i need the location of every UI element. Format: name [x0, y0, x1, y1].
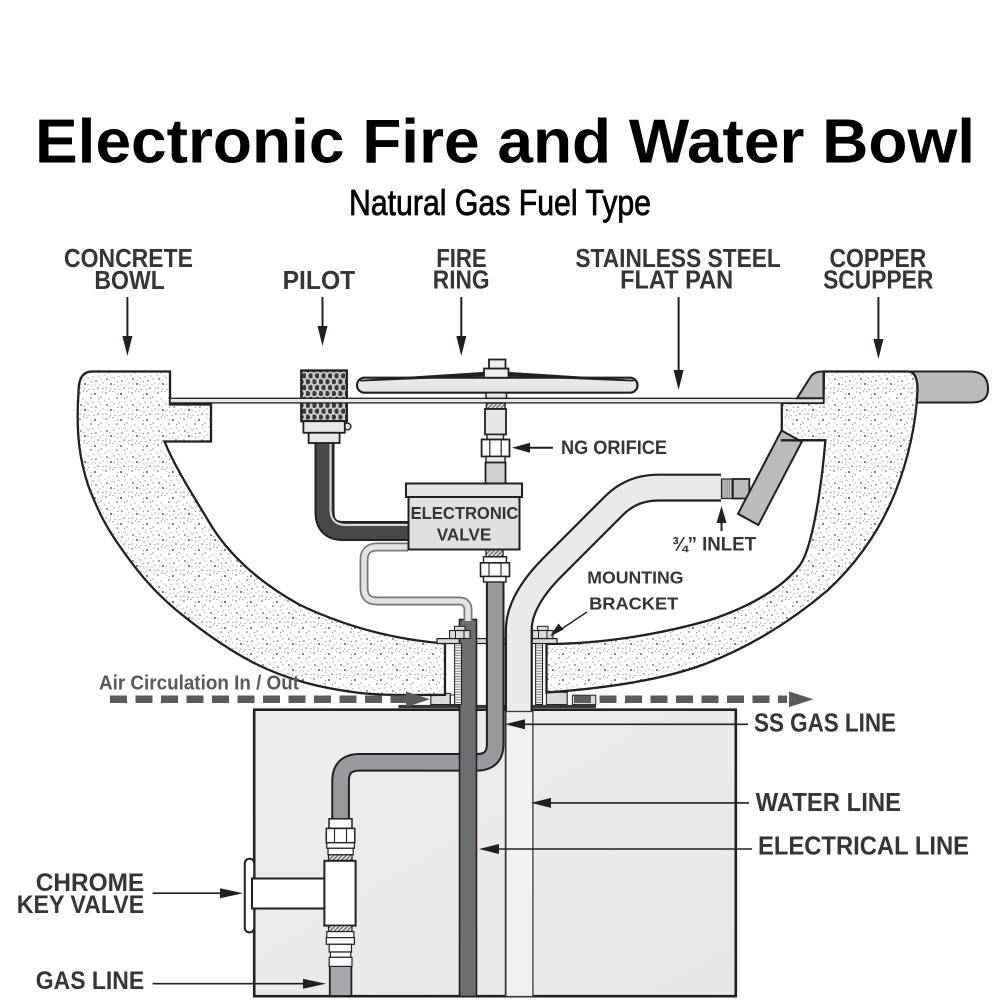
svg-text:MOUNTING: MOUNTING: [587, 567, 683, 587]
svg-text:WATER LINE: WATER LINE: [756, 787, 901, 817]
svg-text:RING: RING: [433, 266, 490, 294]
svg-text:ELECTRONIC: ELECTRONIC: [411, 503, 519, 523]
svg-text:SS GAS LINE: SS GAS LINE: [754, 708, 896, 738]
svg-text:ELECTRICAL LINE: ELECTRICAL LINE: [758, 831, 969, 861]
svg-text:Natural Gas Fuel Type: Natural Gas Fuel Type: [349, 182, 651, 223]
svg-text:Electronic Fire and Water Bowl: Electronic Fire and Water Bowl: [35, 108, 975, 177]
svg-text:Air Circulation In / Out: Air Circulation In / Out: [99, 673, 299, 695]
svg-text:BRACKET: BRACKET: [589, 593, 678, 613]
svg-text:FLAT PAN: FLAT PAN: [620, 266, 733, 294]
svg-text:SCUPPER: SCUPPER: [823, 266, 933, 294]
svg-text:KEY VALVE: KEY VALVE: [17, 892, 144, 919]
svg-text:NG ORIFICE: NG ORIFICE: [561, 438, 667, 459]
svg-text:¾” INLET: ¾” INLET: [672, 534, 756, 556]
svg-text:VALVE: VALVE: [437, 525, 492, 545]
svg-text:GAS LINE: GAS LINE: [36, 968, 144, 995]
svg-text:BOWL: BOWL: [94, 267, 164, 295]
svg-text:PILOT: PILOT: [283, 267, 356, 295]
